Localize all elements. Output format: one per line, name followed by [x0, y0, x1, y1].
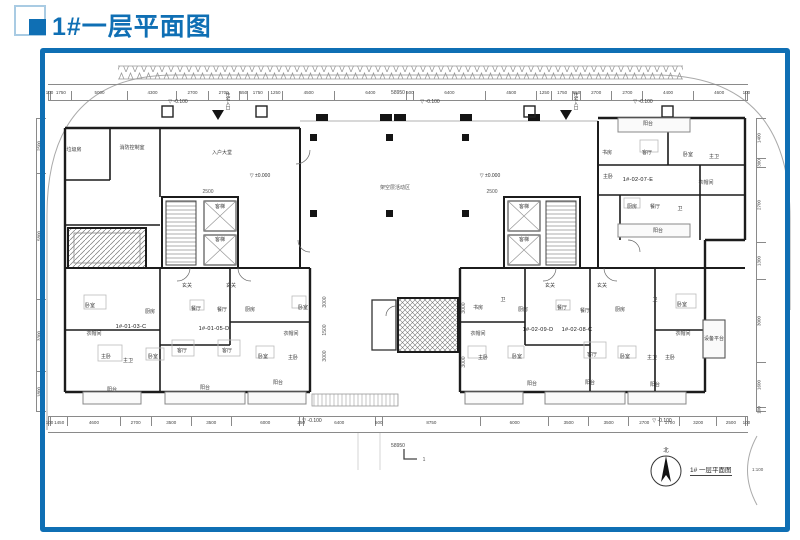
room-label: 卧室	[258, 354, 268, 360]
room-label: 阳台	[200, 385, 210, 391]
room-label: 卧室	[683, 152, 693, 158]
room-label: 客梯	[215, 204, 225, 210]
room-label: 厨房	[145, 309, 155, 315]
room-label: 玄关	[182, 283, 192, 289]
room-label: 玄关	[226, 283, 236, 289]
unit-number-label: 1#-02-08-C	[562, 327, 593, 333]
room-label: 客厅	[587, 352, 597, 358]
annotation-label: 架空层活动区	[380, 185, 410, 191]
annotation-label: 1	[423, 457, 426, 463]
room-label: 消防控制室	[119, 145, 144, 151]
room-label: 客厅	[222, 348, 232, 354]
unit-number-label: 1#-01-05-D	[199, 326, 230, 332]
room-label: 餐厅	[650, 204, 660, 210]
annotation-label: 2500	[202, 189, 213, 195]
room-label: 主卫	[647, 355, 657, 361]
room-label: 客厅	[642, 150, 652, 156]
room-label: 阳台	[643, 121, 653, 127]
room-label: 餐厅	[217, 307, 227, 313]
room-label: 衣帽间	[698, 180, 713, 186]
level-marker: ▽ -0.100	[302, 418, 321, 424]
room-label: 卧室	[85, 303, 95, 309]
room-label: 客厅	[177, 348, 187, 354]
room-label: 阳台	[585, 380, 595, 386]
room-label: 衣帽间	[283, 331, 298, 337]
room-label: 客梯	[519, 237, 529, 243]
room-label: 卧室	[512, 354, 522, 360]
room-label: 衣帽间	[675, 331, 690, 337]
room-label: 餐厅	[557, 305, 567, 311]
room-label: 阳台	[527, 381, 537, 387]
room-label: 客梯	[215, 237, 225, 243]
unit-number-label: 1#-01-03-C	[116, 324, 147, 330]
room-label: 主卫	[123, 358, 133, 364]
annotation-label: 2500	[486, 189, 497, 195]
room-label: 主卧	[665, 355, 675, 361]
annotation-label: 1500	[322, 324, 328, 335]
room-label: 卧室	[677, 302, 687, 308]
drawing-caption: 1# 一层平面图	[690, 464, 732, 476]
room-label: 阳台	[650, 382, 660, 388]
room-label: 衣帽间	[86, 331, 101, 337]
room-label: 书房	[602, 150, 612, 156]
room-label: 餐厅	[191, 306, 201, 312]
level-marker: ▽ -0.100	[633, 99, 652, 105]
level-marker: ▽ -0.100	[652, 418, 671, 424]
room-label: 厨房	[245, 307, 255, 313]
room-label: 入户大堂	[212, 150, 232, 156]
room-label: 阳台	[273, 380, 283, 386]
room-label: 设备平台	[704, 336, 724, 342]
unit-number-label: 1#-02-09-D	[523, 327, 554, 333]
room-label: 客梯	[519, 204, 529, 210]
entrance-label: 住宅入口	[573, 92, 579, 110]
entrance-label: 住宅入口	[225, 92, 231, 110]
room-label: 阳台	[653, 228, 663, 234]
room-label: 垃圾房	[66, 147, 81, 153]
room-label: 厨房	[615, 307, 625, 313]
room-label: 厨房	[627, 204, 637, 210]
room-label: 玄关	[545, 283, 555, 289]
room-label: 卧室	[620, 354, 630, 360]
level-marker: ▽ ±0.000	[250, 173, 271, 179]
room-label: 卧室	[298, 305, 308, 311]
room-label: 主卧	[603, 174, 613, 180]
level-marker: ▽ -0.100	[168, 99, 187, 105]
plan-labels-layer: 1#-01-03-C1#-01-05-D1#-02-09-D1#-02-08-C…	[0, 0, 800, 540]
annotation-label: 3000	[461, 302, 467, 313]
annotation-label: 3000	[461, 356, 467, 367]
room-label: 餐厅	[580, 308, 590, 314]
floor-plan-sheet: 1#一层平面图	[0, 0, 800, 540]
room-label: 卫	[652, 297, 657, 303]
room-label: 卫	[677, 206, 682, 212]
room-label: 厨房	[518, 307, 528, 313]
room-label: 卫	[500, 297, 505, 303]
room-label: 主卧	[478, 355, 488, 361]
room-label: 书房	[473, 305, 483, 311]
room-label: 主卫	[709, 154, 719, 160]
north-label: 北	[663, 446, 669, 454]
room-label: 衣帽间	[470, 331, 485, 337]
drawing-scale: 1:100	[752, 467, 763, 472]
room-label: 主卧	[101, 354, 111, 360]
room-label: 阳台	[107, 387, 117, 393]
room-label: 主卧	[288, 355, 298, 361]
annotation-label: 3000	[322, 350, 328, 361]
room-label: 卧室	[148, 354, 158, 360]
annotation-label: 3000	[322, 296, 328, 307]
unit-number-label: 1#-02-07-E	[623, 177, 654, 183]
level-marker: ▽ ±0.000	[480, 173, 501, 179]
room-label: 玄关	[597, 283, 607, 289]
level-marker: ▽ -0.100	[420, 99, 439, 105]
